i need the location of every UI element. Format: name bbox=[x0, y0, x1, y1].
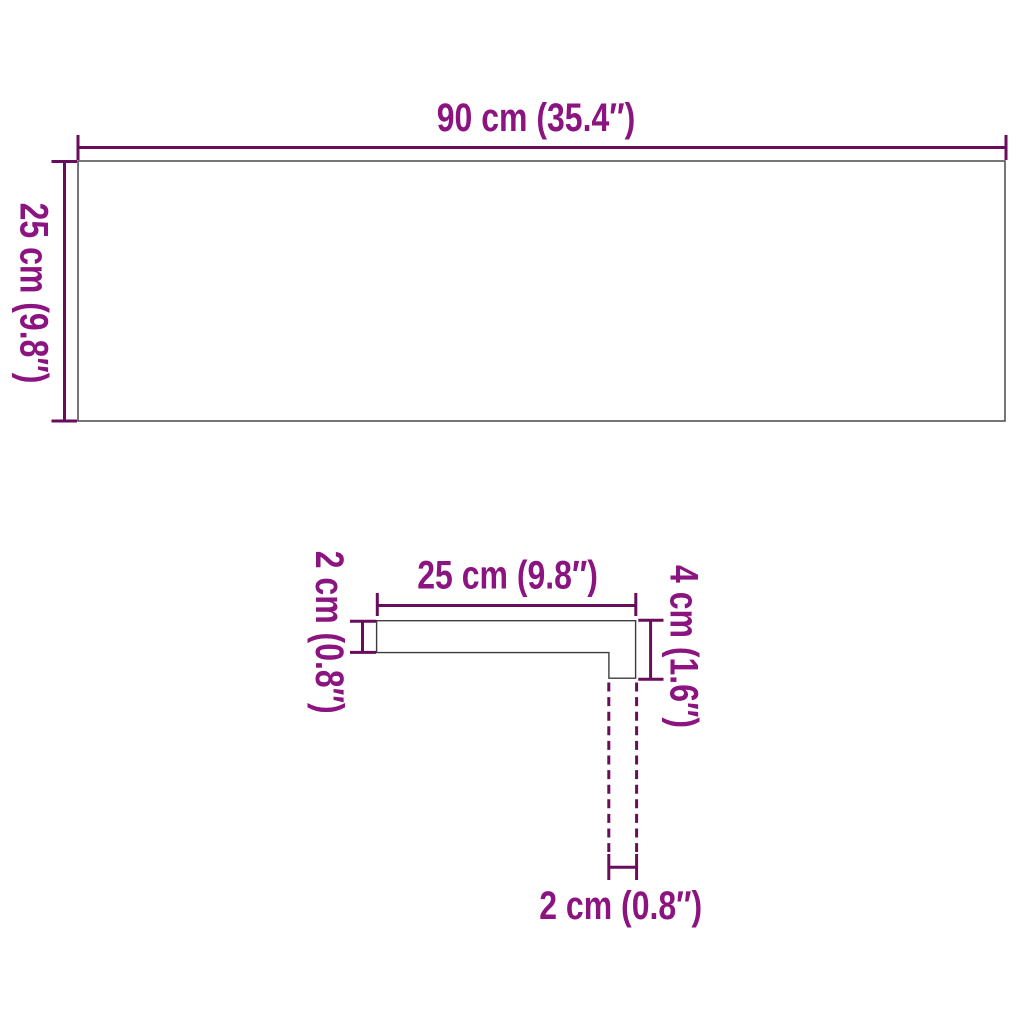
svg-text:25 cm (9.8″): 25 cm (9.8″) bbox=[12, 203, 57, 384]
svg-text:2 cm (0.8″): 2 cm (0.8″) bbox=[307, 551, 352, 714]
svg-text:2 cm (0.8″): 2 cm (0.8″) bbox=[539, 883, 702, 928]
svg-text:90 cm (35.4″): 90 cm (35.4″) bbox=[437, 95, 636, 140]
svg-text:4 cm (1.6″): 4 cm (1.6″) bbox=[662, 565, 707, 728]
svg-text:25 cm (9.8″): 25 cm (9.8″) bbox=[417, 552, 598, 597]
